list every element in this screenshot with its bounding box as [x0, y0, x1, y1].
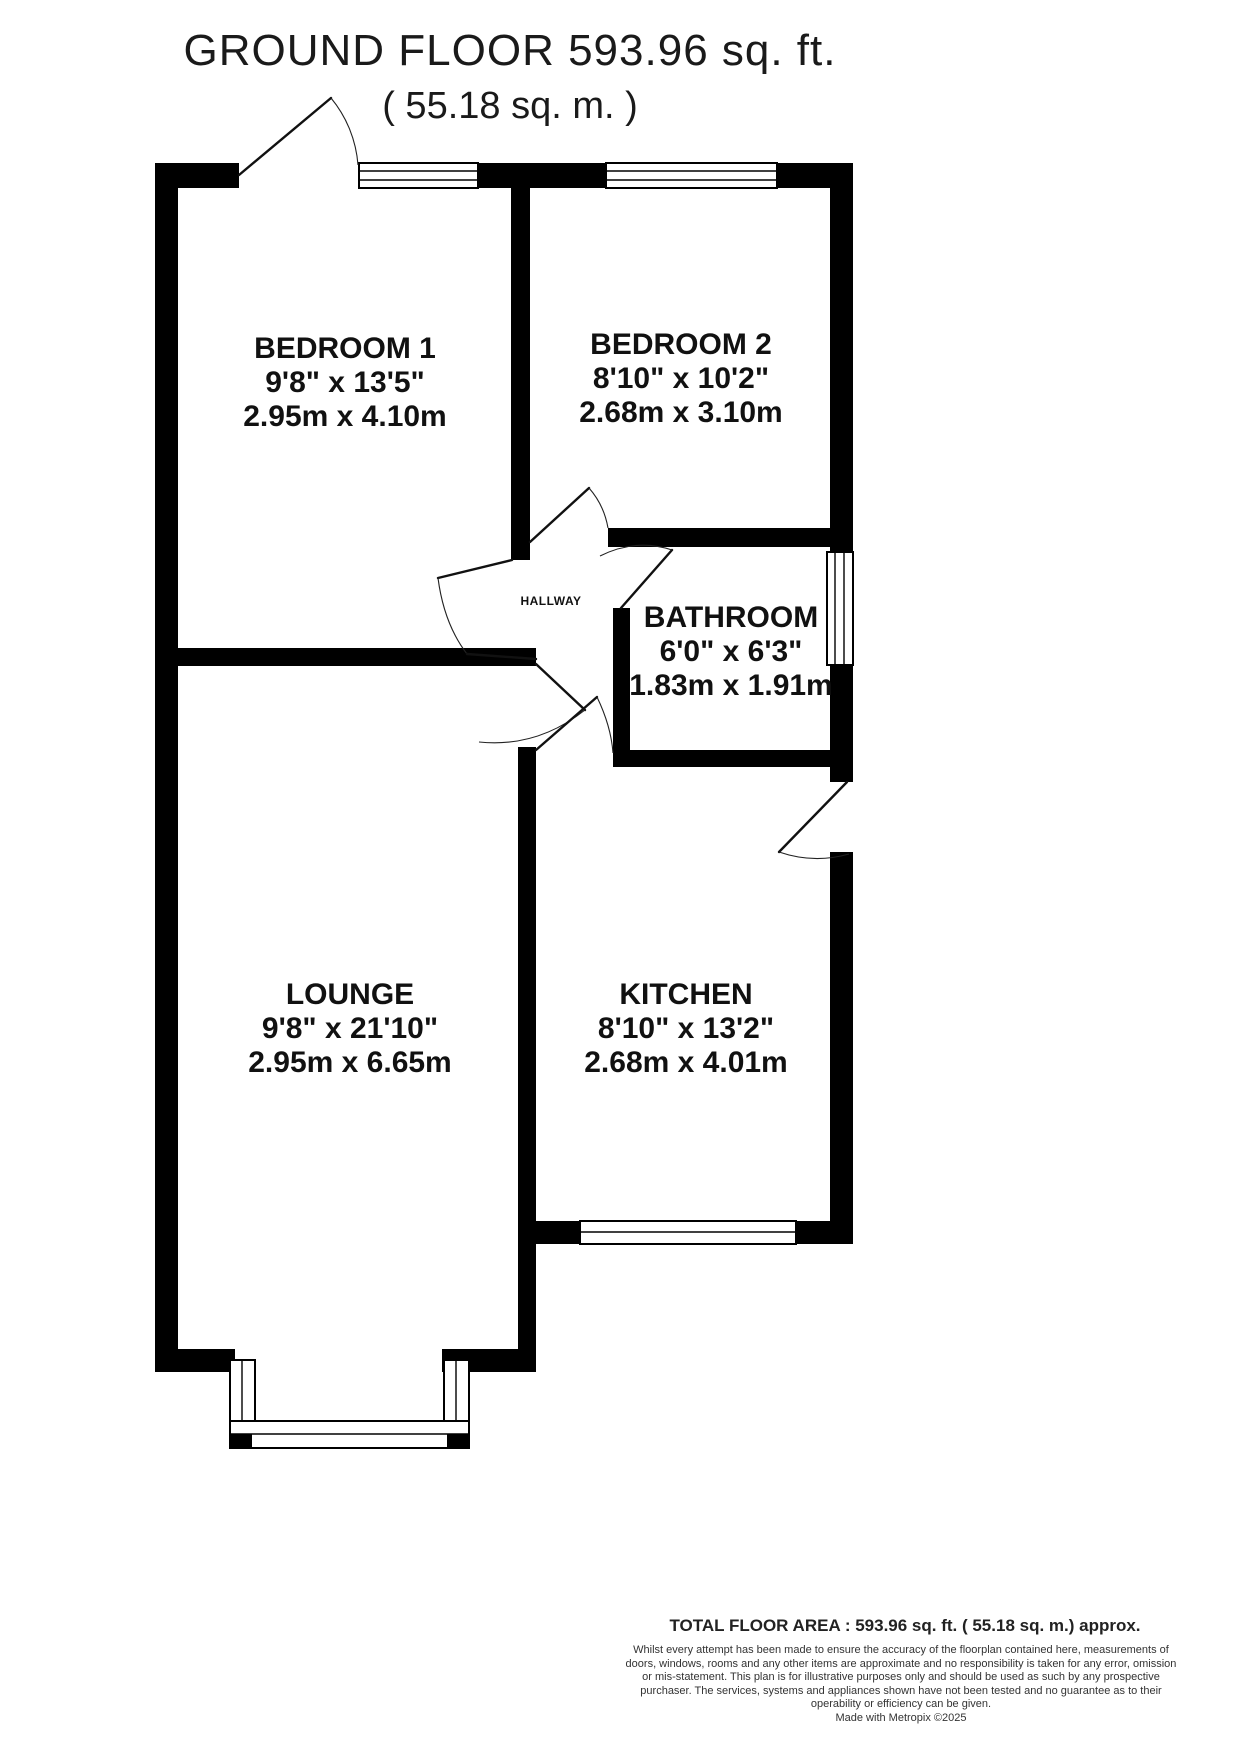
floorplan-page: GROUND FLOOR 593.96 sq. ft. ( 55.18 sq. … [0, 0, 1252, 1753]
room-size-metric: 2.68m x 3.10m [521, 396, 841, 430]
room-name: BATHROOM [571, 601, 891, 635]
wall-bedroom1-lounge [178, 648, 536, 666]
room-size-metric: 1.83m x 1.91m [571, 669, 891, 703]
room-label-lounge: LOUNGE 9'8" x 21'10" 2.95m x 6.65m [190, 978, 510, 1080]
wall-bathroom-bottom [613, 750, 830, 767]
room-size-imperial: 8'10" x 13'2" [526, 1012, 846, 1046]
room-size-imperial: 9'8" x 13'5" [185, 366, 505, 400]
room-size-metric: 2.95m x 6.65m [190, 1046, 510, 1080]
room-label-bedroom2: BEDROOM 2 8'10" x 10'2" 2.68m x 3.10m [521, 328, 841, 430]
side-door-kitchen [779, 782, 849, 859]
room-label-bedroom1: BEDROOM 1 9'8" x 13'5" 2.95m x 4.10m [185, 332, 505, 434]
room-size-metric: 2.68m x 4.01m [526, 1046, 846, 1080]
window-bedroom1-top [359, 163, 478, 188]
room-label-bathroom: BATHROOM 6'0" x 6'3" 1.83m x 1.91m [571, 601, 891, 703]
room-size-imperial: 9'8" x 21'10" [190, 1012, 510, 1046]
room-size-imperial: 8'10" x 10'2" [521, 362, 841, 396]
room-name: BEDROOM 1 [185, 332, 505, 366]
floorplan-drawing [0, 0, 1252, 1753]
room-label-hallway: HALLWAY [491, 594, 611, 608]
total-floor-area: TOTAL FLOOR AREA : 593.96 sq. ft. ( 55.1… [560, 1616, 1250, 1636]
room-name: KITCHEN [526, 978, 846, 1012]
wall-lounge-bottom-left [155, 1349, 235, 1372]
doors [239, 98, 849, 859]
wall-top-left [155, 163, 239, 188]
credit-text: Made with Metropix ©2025 [621, 1712, 1181, 1725]
room-name: BEDROOM 2 [521, 328, 841, 362]
wall-bathroom-top [608, 528, 853, 547]
bay-window [230, 1360, 469, 1448]
room-name: LOUNGE [190, 978, 510, 1012]
room-label-kitchen: KITCHEN 8'10" x 13'2" 2.68m x 4.01m [526, 978, 846, 1080]
wall-kitchen-bottom-left [536, 1221, 580, 1244]
window-kitchen-bottom [580, 1221, 796, 1244]
room-size-metric: 2.95m x 4.10m [185, 400, 505, 434]
disclaimer-text: Whilst every attempt has been made to en… [621, 1644, 1181, 1712]
wall-left [155, 163, 178, 1372]
front-door [239, 98, 358, 175]
room-size-imperial: 6'0" x 6'3" [571, 635, 891, 669]
window-bedroom2-top [606, 163, 777, 188]
wall-kitchen-bottom-right [796, 1221, 853, 1244]
wall-top-mid [478, 163, 606, 188]
